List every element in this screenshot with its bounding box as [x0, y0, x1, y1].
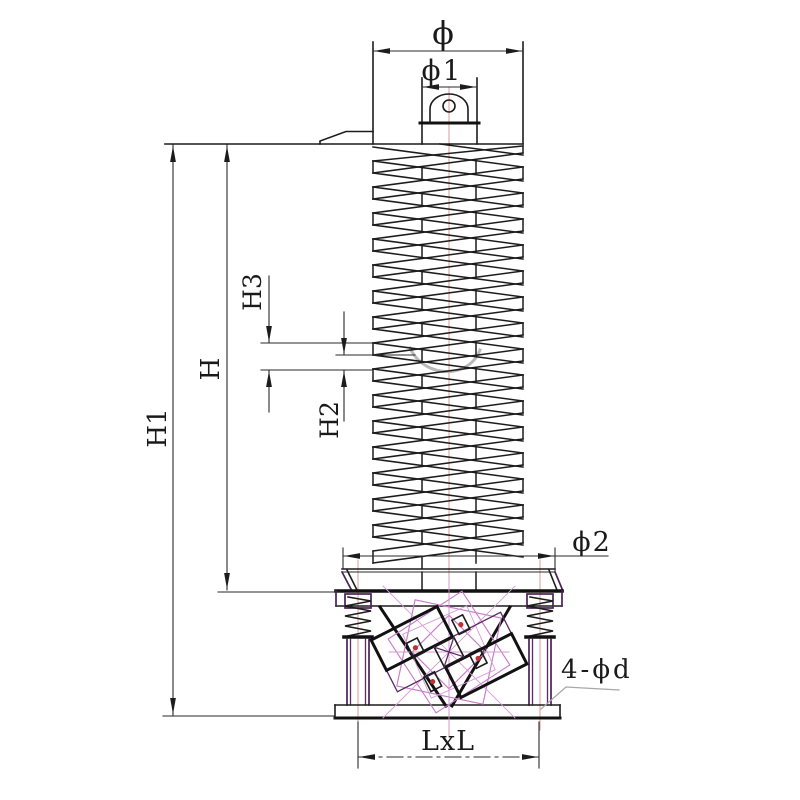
label-anchor-holes: 4-ϕd [561, 655, 633, 685]
spiral-elevator-drawing: ϕ ϕ1 ϕ2 H1 H H3 H2 4-ϕd LxL [0, 0, 800, 800]
label-spiral-height: H [196, 358, 226, 381]
label-top-diameter: ϕ [432, 14, 454, 52]
vibration-motor [371, 574, 527, 730]
label-overall-height: H1 [143, 408, 173, 447]
label-flight-gap: H2 [315, 401, 344, 439]
label-lug-diameter: ϕ1 [422, 54, 463, 87]
spiral-body [373, 144, 523, 590]
engineering-drawing-canvas: ϕ ϕ1 ϕ2 H1 H H3 H2 4-ϕd LxL [0, 0, 800, 800]
dimension-labels: ϕ ϕ1 ϕ2 H1 H H3 H2 4-ϕd LxL [143, 14, 633, 757]
label-flight-pitch: H3 [238, 273, 267, 311]
label-base-footprint: LxL [421, 726, 475, 757]
top-lug-and-flange [165, 42, 523, 144]
label-base-diameter: ϕ2 [572, 527, 612, 558]
